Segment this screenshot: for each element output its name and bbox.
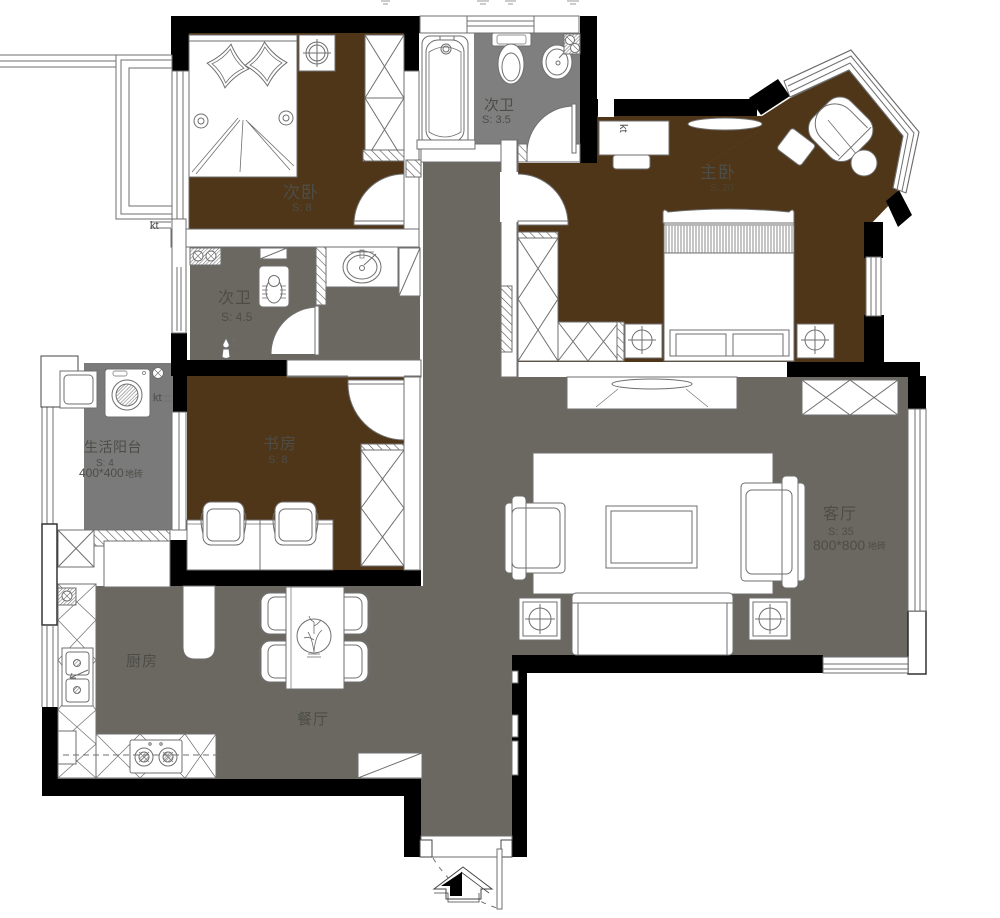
svg-text:S: 8: S: 8 <box>292 202 312 214</box>
svg-text:kt: kt <box>153 392 162 404</box>
svg-text:地砖: 地砖 <box>125 468 143 479</box>
svg-text:400*400: 400*400 <box>79 466 124 480</box>
svg-text:800*800: 800*800 <box>813 537 865 553</box>
svg-text:S: 20: S: 20 <box>710 183 734 194</box>
svg-text:主卧: 主卧 <box>700 163 736 182</box>
svg-text:次卧: 次卧 <box>283 183 319 202</box>
svg-text:书房: 书房 <box>263 435 297 453</box>
svg-text:生活阳台: 生活阳台 <box>84 439 142 455</box>
svg-text:厨房: 厨房 <box>126 653 158 670</box>
svg-text:S: 3.5: S: 3.5 <box>482 114 511 126</box>
svg-text:客厅: 客厅 <box>823 505 857 523</box>
svg-text:次卫: 次卫 <box>484 97 514 114</box>
svg-text:餐厅: 餐厅 <box>297 711 329 728</box>
svg-text:kt: kt <box>150 220 159 232</box>
svg-text:S: 4.5: S: 4.5 <box>221 310 253 324</box>
svg-text:kt: kt <box>617 124 629 133</box>
svg-text:次卫: 次卫 <box>218 289 252 307</box>
svg-text:S: 8: S: 8 <box>268 454 288 466</box>
svg-text:地砖: 地砖 <box>868 540 886 551</box>
